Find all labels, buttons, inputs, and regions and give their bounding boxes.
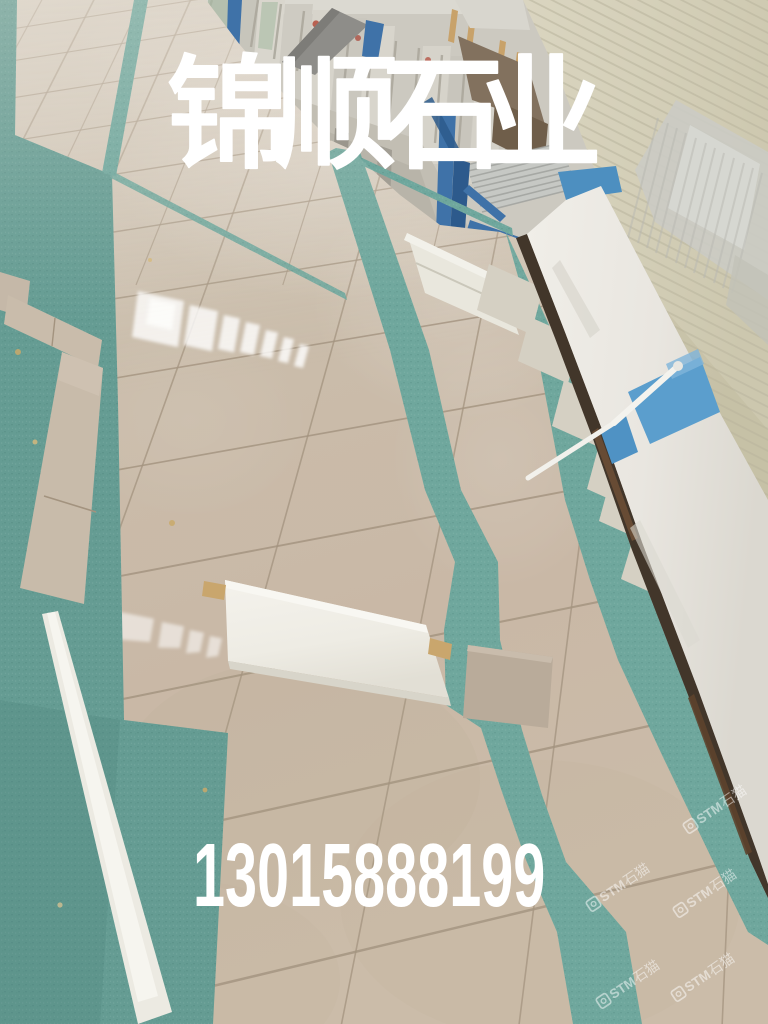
svg-text:13015888199: 13015888199 — [193, 826, 545, 926]
